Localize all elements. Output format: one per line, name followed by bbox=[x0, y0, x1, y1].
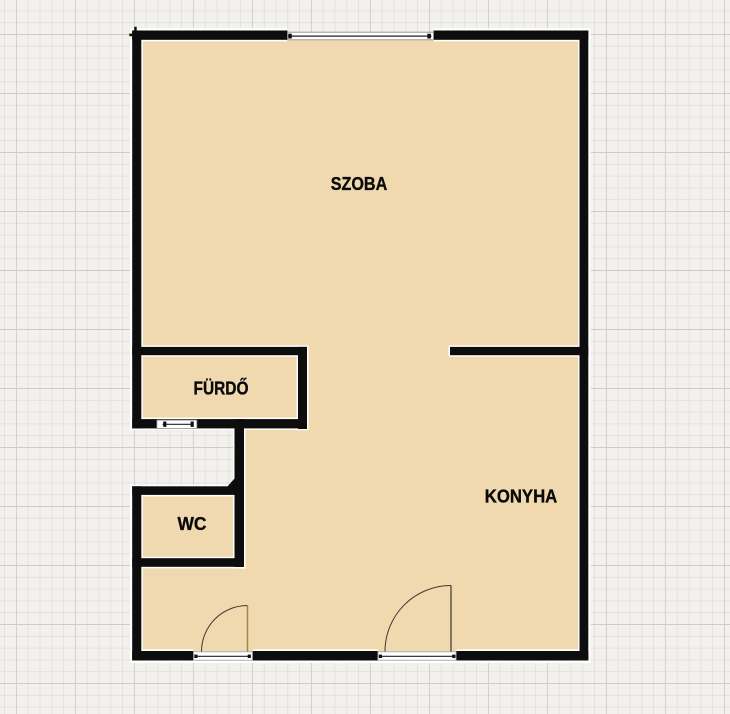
svg-text:SZOBA: SZOBA bbox=[331, 174, 388, 194]
svg-text:FÜRDŐ: FÜRDŐ bbox=[194, 377, 249, 398]
svg-text:KONYHA: KONYHA bbox=[485, 487, 558, 507]
svg-text:WC: WC bbox=[178, 514, 207, 534]
